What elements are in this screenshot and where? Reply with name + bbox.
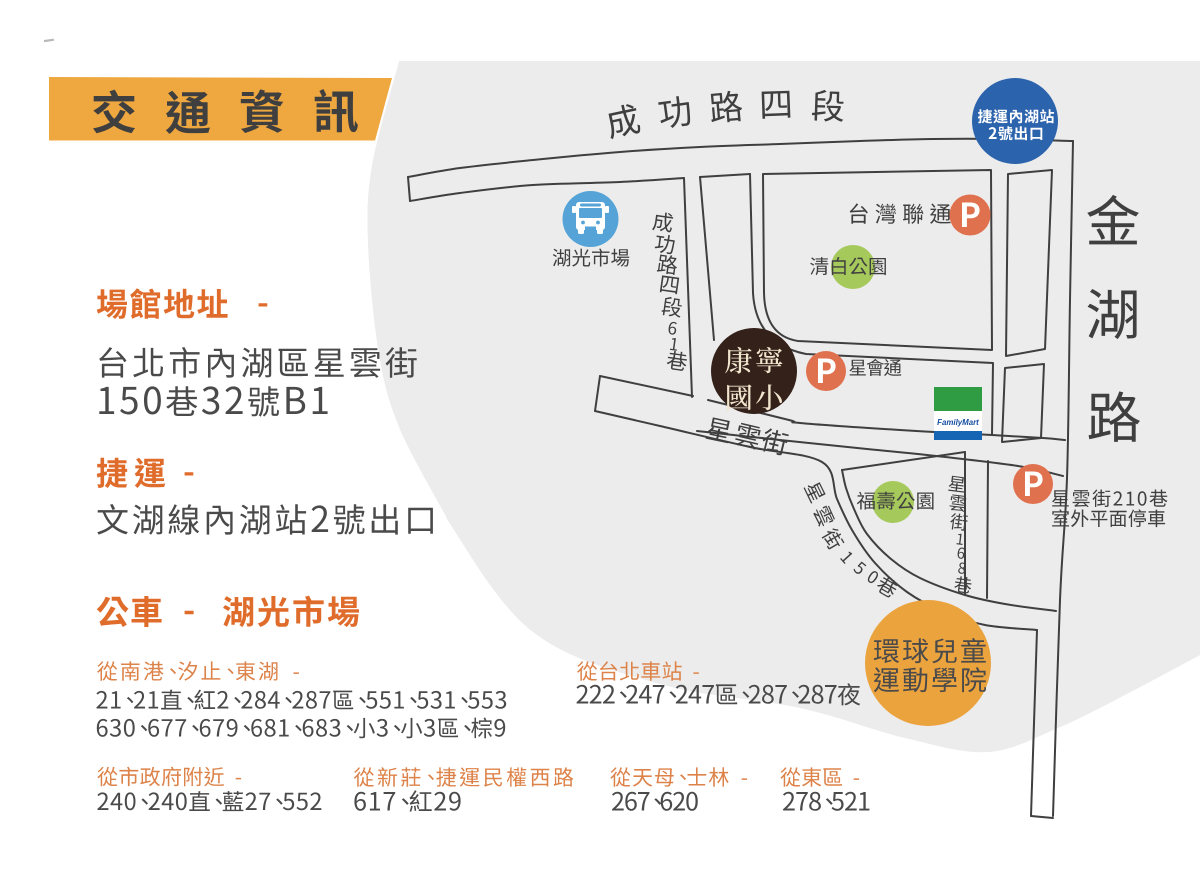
svg-text:FamilyMart: FamilyMart [937,418,979,427]
